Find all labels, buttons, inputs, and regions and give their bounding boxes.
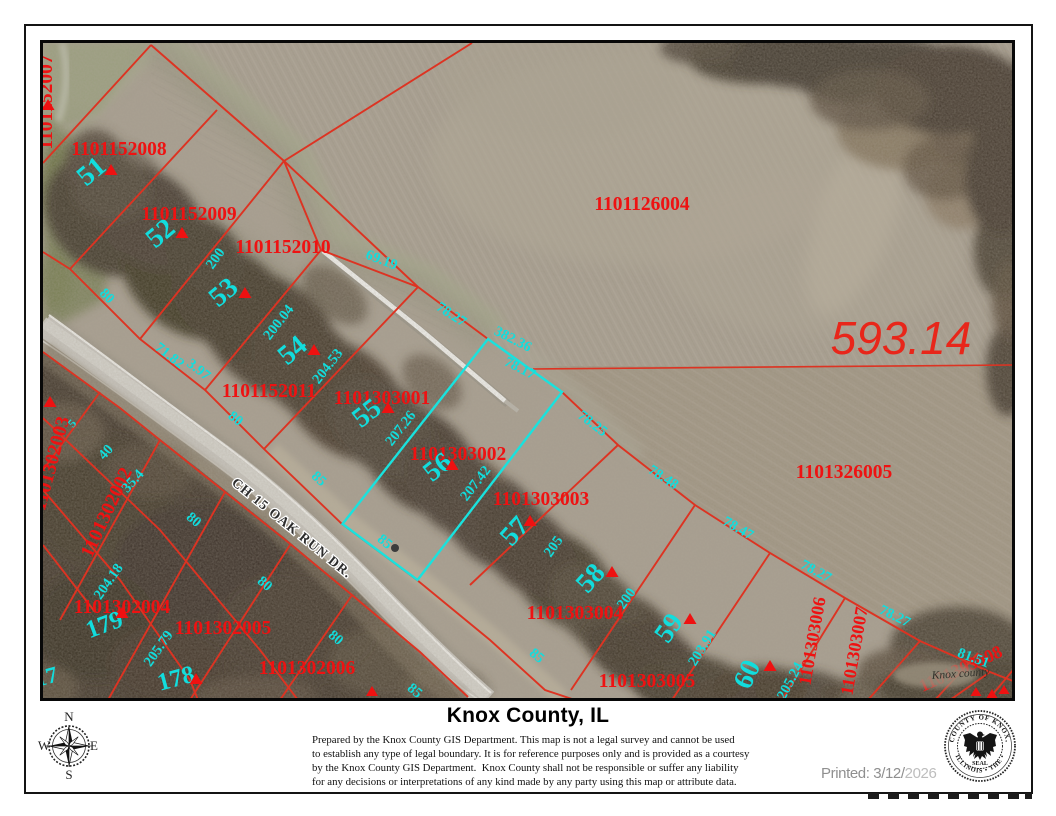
svg-text:1101302006: 1101302006 xyxy=(259,658,356,679)
svg-text:SEAL: SEAL xyxy=(972,761,988,767)
svg-text:1101152010: 1101152010 xyxy=(235,237,330,258)
svg-text:1101152007: 1101152007 xyxy=(43,54,57,150)
svg-text:1101303001: 1101303001 xyxy=(334,388,430,409)
svg-text:1101302005: 1101302005 xyxy=(175,618,272,639)
svg-text:S: S xyxy=(65,767,72,781)
svg-text:N: N xyxy=(64,709,74,724)
svg-text:1101303004: 1101303004 xyxy=(527,603,624,624)
svg-text:1101303003: 1101303003 xyxy=(493,489,590,510)
svg-text:1101303005: 1101303005 xyxy=(599,671,696,692)
svg-text:E: E xyxy=(90,738,98,753)
svg-text:1101152011: 1101152011 xyxy=(222,381,316,402)
svg-text:1101326005: 1101326005 xyxy=(796,462,893,483)
svg-text:593.14: 593.14 xyxy=(831,312,972,364)
svg-text:1101126004: 1101126004 xyxy=(594,194,690,215)
